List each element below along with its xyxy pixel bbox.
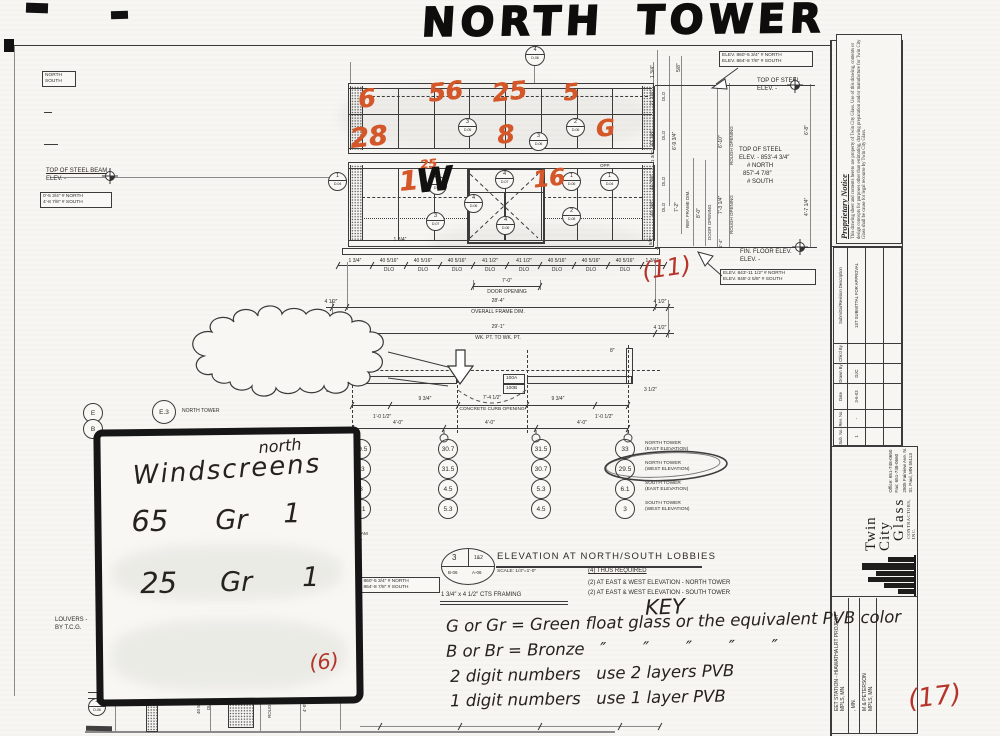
glass-mark-g: G: [595, 115, 617, 143]
dim-label: 6'-9 3/4″: [672, 132, 678, 150]
proprietary-notice-title: Proprietary Notice: [839, 39, 849, 239]
dim-label: DLO: [661, 203, 667, 212]
top-of-steel-right-2: ELEV. -: [757, 86, 777, 93]
dim-label: 9 3/4″: [419, 396, 432, 402]
dim-label: 5/8″: [676, 63, 682, 72]
glass-mark-25: 25: [491, 75, 529, 107]
line: [362, 218, 467, 219]
callout-sheet: D-08: [563, 216, 580, 222]
schedule-row-label: SOUTH TOWER(WEST ELEVATION): [645, 501, 690, 513]
callout-sheet: D-04: [601, 181, 618, 187]
detail-callout-bubble: 3D-06: [529, 132, 548, 151]
schedule-row-label: NORTH TOWER(EAST ELEVATION): [645, 441, 688, 453]
detail-callout-bubble: 2D-06: [566, 118, 585, 137]
glass-mark-8: 8: [496, 119, 516, 150]
cts-framing-note: 1 3/4″ x 4 1/2″ CTS FRAMING: [441, 592, 521, 598]
line: [830, 733, 918, 734]
rev-empty-cell: [884, 247, 902, 343]
dim-label: 7'-2″: [674, 202, 680, 212]
detail-sheet-b06: B-06: [448, 570, 458, 576]
scan-mark: [111, 11, 128, 20]
bubble-divider: [468, 549, 469, 566]
callout-sheet: D-06: [530, 141, 547, 147]
louvers-note-1: LOUVERS -: [55, 617, 87, 624]
architect-note-line: S-02 & S-10. PLEASE COORDINATE: [216, 367, 386, 374]
line: [810, 84, 811, 248]
schedule-row-label-line: (EAST ELEVATION): [645, 487, 688, 493]
dim-label: 3 1/2″: [644, 387, 657, 393]
dim-label: 1 3/4″: [394, 237, 407, 243]
glass-mark-28: 28: [348, 120, 389, 155]
line: [628, 345, 629, 433]
rev-empty-cell: [866, 343, 884, 363]
glass-mark-56: 56: [427, 75, 465, 107]
line: [326, 307, 674, 308]
windscreen-layers-2: 1: [302, 562, 320, 593]
top-right-elev-box-line: ELEV. 864'-8 7/8″ # SOUTH: [722, 59, 810, 65]
callout-number: 3: [459, 119, 476, 127]
dim-label: 1 3/4″: [650, 150, 656, 162]
schedule-circle: 29.5: [615, 459, 635, 479]
scan-mark: [86, 726, 112, 731]
line: [693, 158, 694, 246]
company-phone-office: Office: 651-748-0650: [888, 448, 894, 493]
company-block: Twin City Glass CONTRACTORS, INC. Office…: [832, 448, 916, 596]
line: [352, 405, 628, 406]
detail-callout-bubble: 2D-08: [562, 207, 581, 226]
dim-label: 4'-7 1/4″: [804, 198, 810, 216]
rev-header: Chk'd By: [834, 343, 848, 363]
line: [473, 286, 540, 287]
dim-label: DLO: [661, 131, 667, 140]
callout-sheet: D-06: [497, 225, 514, 231]
dim-label: 1'-4″: [718, 239, 724, 248]
dim-label: 7'-3 1/4″: [718, 196, 724, 214]
callout-number: 1: [601, 173, 618, 181]
detail-callout-bubble: 3D-07: [426, 212, 445, 231]
fin-floor-2: ELEV. -: [740, 257, 760, 264]
mid-steel-2: ELEV. - 853'-4 3/4″: [739, 155, 789, 162]
dim-label: CONCRETE CURB OPENING: [459, 407, 524, 413]
glass-mark-w: W: [414, 158, 454, 201]
dim-label: DLO: [384, 267, 394, 273]
line: [705, 160, 706, 246]
callout-number: 4: [465, 195, 482, 203]
dim-label: DLO: [552, 267, 562, 273]
scan-mark: [4, 39, 14, 52]
detail-callout-bubble: 4D-06: [464, 194, 483, 213]
company-name-3: CONTRACTORS, INC.: [906, 497, 916, 551]
north-south-tag-line: SOUTH: [45, 79, 73, 85]
schedule-circle: 6.1: [615, 479, 635, 499]
dim-label: 4'-0″: [302, 703, 308, 712]
opp-label: OPP.: [600, 163, 610, 169]
red-count-11: (11): [640, 251, 693, 286]
callout-sheet: D-06: [567, 127, 584, 133]
dim-label: DLO: [586, 267, 596, 273]
callout-number: 3: [427, 213, 444, 221]
architect-note-line: DEVIATES FROM THE 7'-4″ DIMENSION: [216, 352, 386, 359]
dim-label: 28'-4″: [492, 298, 505, 304]
dim-label: 1 3/4″: [349, 258, 362, 264]
mid-steel-5: # SOUTH: [747, 179, 773, 186]
dim-label: 1 3/4″: [650, 65, 656, 78]
dim-label: 29'-1″: [492, 324, 505, 330]
req-north-tower: (2) AT EAST & WEST ELEVATION - NORTH TOW…: [588, 580, 730, 586]
callout-sheet: D-04: [329, 181, 346, 187]
lobby-detail-title: ELEVATION AT NORTH/SOUTH LOBBIES: [497, 551, 716, 562]
rev-header: Date: [834, 383, 848, 409]
schedule-circle: 31.5: [438, 459, 458, 479]
left-elev-box-line: 4'-8 7/8″ # SOUTH: [43, 200, 109, 206]
line: [44, 112, 52, 113]
dim-label: 4 1/2″: [654, 299, 667, 305]
revision-table: Sub. No.Rev. No.DateDrawn ByChk'd BySubm…: [833, 246, 903, 446]
dim-label: 6'-8″: [804, 125, 810, 135]
dim-label: DLO: [519, 267, 529, 273]
glass-mark-6: 6: [357, 83, 377, 114]
callout-number: 4: [526, 47, 544, 55]
line: [85, 731, 615, 733]
schedule-row-label-line: (WEST ELEVATION): [645, 507, 690, 513]
line: [543, 197, 642, 198]
dim-label: 41 3/8″: [650, 130, 656, 146]
callout-sheet: D-07: [496, 179, 513, 185]
rev-empty-cell: [884, 427, 902, 445]
mid-steel-3: # NORTH: [747, 163, 773, 170]
drawing-sheet: NORTH TOWER ARCHITECT/G.C. NOTE: CONCRET…: [0, 0, 1000, 736]
line: [830, 596, 918, 597]
door-tag-100a-line: 100A: [506, 376, 522, 382]
dim-label: DOOR OPENING: [487, 289, 526, 295]
line: [830, 446, 918, 447]
top-of-steel-right-1: TOP OF STEEL: [757, 78, 800, 85]
architect-note-line: CONCRETE CURB OPENING IS TO: [216, 338, 386, 345]
dim-label: 7'-0″: [502, 278, 512, 284]
dim-label: 6'-10″: [718, 135, 724, 148]
dim-label: 41 1/2″: [516, 258, 532, 264]
dim-label: 40 5/16″: [582, 258, 600, 264]
detail-number-alt: 1&2: [474, 555, 483, 561]
rev-empty-cell: [866, 427, 884, 445]
dim-label: 40 3/8″: [650, 200, 656, 216]
rev-header: Drawn By: [834, 363, 848, 383]
rev-value: 1ST SUBMITTAL FOR APPROVAL: [848, 247, 866, 343]
rev-value: DJC: [848, 363, 866, 383]
mullion: [398, 88, 399, 148]
rev-header: Rev. No.: [834, 409, 848, 427]
dim-label: 8″: [366, 348, 371, 354]
proprietary-notice-body: This drawing sheet and contents hereto a…: [851, 39, 868, 239]
floor-elev-box-line: ELEV. 848'-2 5/8″ # SOUTH: [723, 277, 813, 283]
line: [669, 56, 670, 206]
left-elev-box: 0'-5 3/4″ # NORTH4'-8 7/8″ # SOUTH: [40, 192, 112, 208]
line: [352, 428, 628, 429]
glass-mark-16: 16: [532, 164, 567, 193]
detail-number: 3: [452, 553, 456, 562]
hatched-mullion: [350, 165, 363, 241]
rev-empty-cell: [866, 363, 884, 383]
door-tag-100a: 100A: [503, 374, 525, 384]
dim-label: DLO: [418, 267, 428, 273]
windscreen-glass-gr-1: Gr: [215, 505, 247, 536]
architect-note-line: ACCORDINGLY.: [216, 374, 386, 381]
grid-label-north-tower: NORTH TOWER: [182, 408, 220, 414]
callout-sheet: D-06: [89, 707, 105, 713]
dim-label: 4 1/2″: [325, 299, 338, 305]
proprietary-notice: Proprietary Notice This drawing sheet an…: [836, 34, 902, 244]
left-steel-beam-1: TOP OF STEEL BEAM: [46, 168, 107, 175]
rev-value: 1: [848, 427, 866, 445]
detail-callout-bubble: 1D-04: [600, 172, 619, 191]
schedule-circle: 3: [615, 499, 635, 519]
mid-steel-4: 857'-4 7/8″: [743, 171, 772, 178]
line: [655, 247, 817, 248]
lobby-scale: SCALE: 1/4″=1'-0″: [497, 569, 536, 574]
dim-label: 4'-0″: [485, 420, 495, 426]
dim-label: 8″: [610, 348, 615, 354]
rev-empty-cell: [884, 409, 902, 427]
line: [14, 46, 15, 696]
windscreen-qty-25: 25: [140, 566, 177, 600]
dim-label: 3 1/2″: [326, 388, 339, 394]
line: [681, 56, 682, 234]
dim-label: DOOR OPENING: [707, 204, 713, 240]
dim-label: DLO: [620, 267, 630, 273]
glass-mark-5: 5: [562, 79, 581, 107]
detail-callout-bubble: 3D-05: [458, 118, 477, 137]
schedule-circle: 33: [615, 439, 635, 459]
rev-empty-cell: [866, 247, 884, 343]
schedule-circle: 5.3: [438, 499, 458, 519]
dim-label: 40 3/8″: [650, 174, 656, 190]
bubble-divider: [442, 566, 494, 567]
line: [350, 62, 351, 83]
sill-band: [342, 248, 660, 255]
schedule-circle: 4.5: [531, 499, 551, 519]
schedule-row-label: NORTH TOWER(WEST ELEVATION): [645, 461, 690, 473]
callout-sheet: D-06: [526, 55, 544, 61]
dim-label: OVERALL FRAME DIM.: [471, 309, 525, 315]
dim-label: DLO: [452, 267, 462, 273]
detail-callout-bubble: 4D-06: [496, 216, 515, 235]
windscreen-glass-gr-2: Gr: [220, 567, 252, 598]
line: [360, 726, 660, 727]
dim-label: 40 5/16″: [616, 258, 634, 264]
dim-label: 4 1/2″: [654, 325, 667, 331]
dim-label: 40 5/16″: [548, 258, 566, 264]
grid-bubble-e3: E.3: [152, 400, 176, 424]
rev-empty-cell: [866, 383, 884, 409]
architect-note-line: BE 7'-4 1/2″. PLEASE NOTE, THIS: [216, 345, 386, 352]
rev-empty-cell: [884, 383, 902, 409]
line: [657, 50, 658, 250]
architect-note-line: CALLED OUT ON STRUCTURAL DRG.'S: [216, 360, 386, 367]
callout-sheet: D-07: [427, 221, 444, 227]
fin-floor-1: FIN. FLOOR ELEV.: [740, 249, 792, 256]
schedule-row-label: SOUTH TOWER(EAST ELEVATION): [645, 481, 688, 493]
rev-header: Submittal/Revision Description: [834, 247, 848, 343]
dim-label: 9 3/4″: [552, 396, 565, 402]
dim-label: 7'-4 1/2″: [483, 395, 501, 401]
dim-label: 41 1/2″: [482, 258, 498, 264]
windscreen-qty-65: 65: [131, 504, 168, 538]
company-address-2: St. Paul, MN 55113: [908, 448, 914, 493]
rev-value: 3-6-03: [848, 383, 866, 409]
rev-empty-cell: [866, 409, 884, 427]
line: [44, 144, 58, 145]
rev-value: -: [848, 409, 866, 427]
windscreen-tally-box: north Windscreens 65 Gr 1 25 Gr 1 (6): [93, 426, 363, 706]
plan-sill-right: [527, 376, 632, 384]
dim-label: 8'-0″: [696, 208, 702, 218]
dim-label: 5/8″: [648, 237, 654, 245]
door-tag-100b-line: 100B: [506, 386, 522, 392]
key-line-bronze: B or Br = Bronze ″ ″ ″ ″ ″: [446, 636, 778, 661]
rev-empty-cell: [884, 363, 902, 383]
key-line-2digit: 2 digit numbers use 2 layers PVB: [450, 661, 735, 686]
hatched-fragment: [146, 702, 158, 732]
top-right-elev-box: ELEV. 860'-5 3/4″ # NORTHELEV. 864'-8 7/…: [719, 51, 813, 67]
architect-note-heading: ARCHITECT/G.C. NOTE:: [216, 330, 386, 338]
page-title: NORTH TOWER: [420, 0, 827, 46]
dim-label: ROUGH OPENING: [729, 195, 735, 234]
floor-elev-box: ELEV. 843'-11 1/2″ # NORTHELEV. 848'-2 5…: [720, 269, 816, 285]
architect-note: ARCHITECT/G.C. NOTE: CONCRETE CURB OPENI…: [216, 330, 386, 381]
callout-number: 2: [567, 119, 584, 127]
line: [457, 350, 458, 433]
callout-number: 4: [496, 171, 513, 179]
line: [717, 86, 718, 248]
dim-label: 40 5/16″: [414, 258, 432, 264]
line: [527, 350, 528, 433]
schedule-circle: 30.7: [438, 439, 458, 459]
windscreen-layers-1: 1: [283, 498, 301, 529]
dim-tick: [658, 723, 663, 731]
dim-label: 27 1/8″: [650, 90, 656, 106]
north-south-tag: NORTHSOUTH: [42, 71, 76, 87]
schedule-circle: 31.5: [531, 439, 551, 459]
line: [440, 604, 568, 605]
dim-label: 40 5/16″: [448, 258, 466, 264]
line: [338, 265, 665, 266]
callout-number: 4: [497, 217, 514, 225]
callout-number: 1: [563, 173, 580, 181]
windscreen-title: Windscreens: [132, 449, 322, 491]
red-count-17: (17): [906, 679, 963, 715]
dim-label: 1'-0 1/2″: [373, 414, 391, 420]
company-phone-fax: Fax: 651-748-0660: [894, 448, 900, 493]
dim-label: 4 1/2″: [325, 325, 338, 331]
detail-callout-bubble: 4D-07: [495, 170, 514, 189]
company-name-1: Twin City: [864, 497, 892, 551]
dim-label: WK. PT. TO WK. PT.: [475, 335, 521, 341]
scan-mark: [26, 3, 48, 14]
callout-sheet: D-06: [465, 203, 482, 209]
dim-label: DLO: [485, 267, 495, 273]
schedule-circle: 30.7: [531, 459, 551, 479]
schedule-circle: 5.3: [531, 479, 551, 499]
rev-header: Sub. No.: [834, 427, 848, 445]
line: [50, 177, 346, 178]
red-count-6: (6): [308, 648, 340, 675]
rev-value: [848, 343, 866, 363]
line: [440, 601, 568, 602]
dim-label: DLO: [661, 92, 667, 101]
door-tag-100b: 100B: [503, 384, 525, 394]
dim-label: 4'-0″: [577, 420, 587, 426]
dim-label: 40 5/16″: [380, 258, 398, 264]
company-name-2: Glass: [892, 497, 906, 551]
callout-sheet: D-05: [459, 127, 476, 133]
thus-required-note: (4) THUS REQUIRED: [588, 568, 647, 574]
callout-number: 1: [329, 173, 346, 181]
callout-number: 2: [563, 208, 580, 216]
company-logo-skyline: [852, 555, 916, 596]
rev-empty-cell: [884, 343, 902, 363]
detail-sheet-a06: A-06: [472, 570, 482, 576]
line: [543, 218, 642, 219]
detail-callout-bubble: 1D-04: [328, 172, 347, 191]
schedule-circle: 4.5: [438, 479, 458, 499]
detail-bubble: 3 1&2 B-06 A-06: [441, 548, 495, 585]
detail-callout-bubble: 4D-06: [525, 46, 545, 66]
left-steel-beam-2: ELEV. -: [46, 176, 66, 183]
dim-label: REF. FRAME DIM.: [685, 190, 691, 228]
key-line-1digit: 1 digit numbers use 1 layer PVB: [450, 687, 726, 711]
dim-label: DLO: [661, 177, 667, 186]
line: [534, 64, 535, 83]
line: [655, 85, 815, 86]
dim-label: 4'-0″: [393, 420, 403, 426]
dim-label: ROUGH OPENING: [729, 126, 735, 165]
schedule-row-label-line: (WEST ELEVATION): [645, 467, 690, 473]
louvers-note-2: BY T.C.G.: [55, 625, 81, 632]
dim-label: 1'-0 1/2″: [595, 414, 613, 420]
schedule-row-label-line: (EAST ELEVATION): [645, 447, 688, 453]
mid-steel-1: TOP OF STEEL: [739, 147, 782, 154]
callout-number: 3: [530, 133, 547, 141]
